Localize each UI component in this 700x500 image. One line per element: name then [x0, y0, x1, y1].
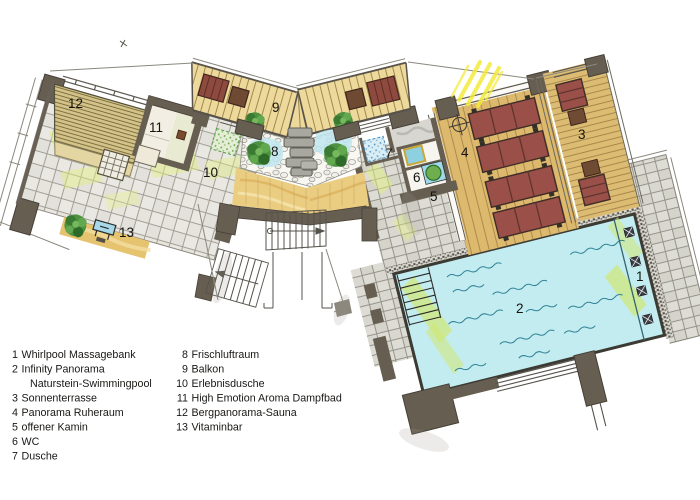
- svg-text:10: 10: [176, 378, 188, 390]
- svg-text:Erlebnisdusche: Erlebnisdusche: [192, 378, 265, 390]
- svg-text:13: 13: [176, 422, 188, 434]
- svg-text:8: 8: [271, 144, 279, 159]
- svg-text:Whirlpool Massagebank: Whirlpool Massagebank: [22, 349, 137, 361]
- svg-text:Naturstein-Swimmingpool: Naturstein-Swimmingpool: [30, 378, 152, 390]
- svg-text:2: 2: [516, 301, 524, 316]
- svg-text:8: 8: [182, 349, 188, 361]
- svg-text:2: 2: [12, 364, 18, 376]
- svg-text:9: 9: [182, 364, 188, 376]
- svg-text:5: 5: [12, 422, 18, 434]
- svg-text:Infinity Panorama: Infinity Panorama: [22, 364, 105, 376]
- svg-text:4: 4: [12, 407, 18, 419]
- svg-text:Panorama Ruheraum: Panorama Ruheraum: [22, 407, 124, 419]
- svg-text:Vitaminbar: Vitaminbar: [192, 422, 243, 434]
- svg-text:4: 4: [461, 145, 469, 160]
- svg-text:Bergpanorama-Sauna: Bergpanorama-Sauna: [192, 407, 297, 419]
- svg-text:Balkon: Balkon: [192, 364, 225, 376]
- svg-text:12: 12: [176, 407, 188, 419]
- svg-text:High Emotion Aroma Dampfbad: High Emotion Aroma Dampfbad: [192, 393, 342, 405]
- svg-text:Sonnenterrasse: Sonnenterrasse: [22, 393, 98, 405]
- svg-text:1: 1: [636, 269, 644, 284]
- svg-text:10: 10: [203, 165, 218, 180]
- svg-text:9: 9: [272, 100, 280, 115]
- svg-text:1: 1: [12, 349, 18, 361]
- svg-text:Frischluftraum: Frischluftraum: [192, 349, 260, 361]
- svg-text:7: 7: [12, 451, 18, 463]
- svg-text:offener Kamin: offener Kamin: [22, 422, 88, 434]
- svg-text:Dusche: Dusche: [22, 451, 58, 463]
- svg-text:11: 11: [177, 393, 188, 405]
- svg-text:7: 7: [385, 146, 393, 161]
- svg-text:6: 6: [413, 170, 421, 185]
- svg-text:6: 6: [12, 436, 18, 448]
- svg-text:5: 5: [430, 189, 438, 204]
- svg-text:13: 13: [119, 225, 134, 240]
- svg-text:12: 12: [68, 96, 83, 111]
- svg-text:11: 11: [149, 120, 163, 135]
- svg-text:WC: WC: [22, 436, 40, 448]
- svg-text:3: 3: [578, 127, 586, 142]
- svg-text:3: 3: [12, 393, 18, 405]
